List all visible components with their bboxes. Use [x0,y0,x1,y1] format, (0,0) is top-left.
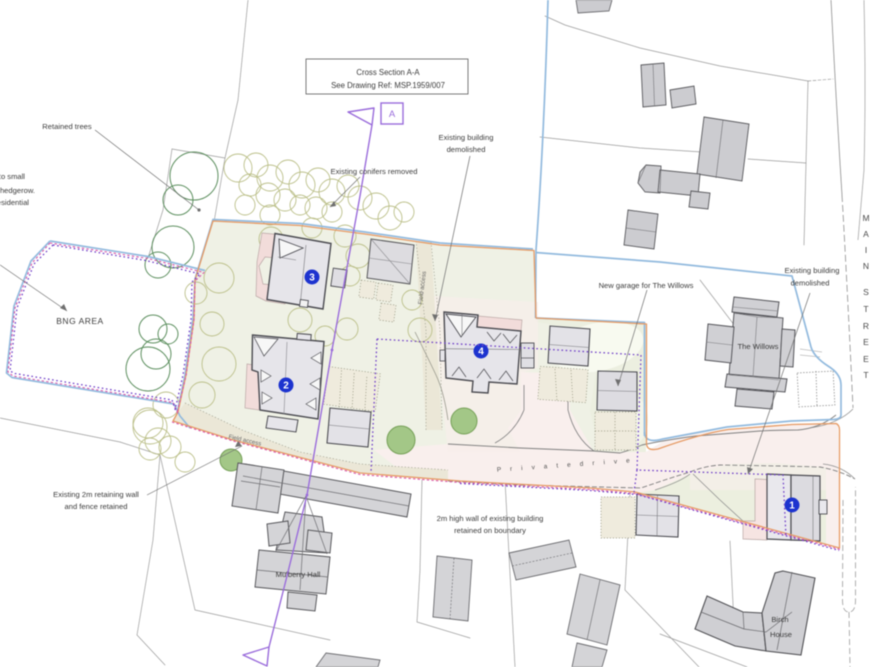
svg-text:2m high wall of existing buil: 2m high wall of existing building [437,514,544,523]
svg-text:Existing building: Existing building [439,133,494,142]
svg-text:2: 2 [283,381,289,392]
svg-text:3: 3 [309,273,315,284]
svg-text:BNG AREA: BNG AREA [56,316,103,326]
svg-text:1: 1 [789,501,795,512]
svg-text:esidential: esidential [0,198,29,207]
svg-text:Retained trees: Retained trees [42,122,92,131]
svg-text:Existing building: Existing building [785,266,840,275]
svg-text:and fence retained: and fence retained [65,502,128,511]
svg-text:New garage for The Willows: New garage for The Willows [599,281,694,290]
svg-text:to small: to small [0,172,25,181]
svg-text:N: N [863,261,869,271]
svg-text:Existing conifers removed: Existing conifers removed [331,167,418,176]
svg-text:I: I [865,245,867,255]
svg-text:Birch: Birch [771,615,788,624]
svg-text:retained on boundary: retained on boundary [454,526,526,535]
svg-text:See Drawing Ref: MSP.1959/007: See Drawing Ref: MSP.1959/007 [331,81,445,90]
svg-text:demolished: demolished [447,145,486,154]
svg-text:S: S [863,287,869,297]
svg-text:T: T [863,370,868,380]
svg-text:Cross Section A-A: Cross Section A-A [356,68,420,77]
svg-text:demolished: demolished [791,279,830,288]
svg-text:House: House [770,630,792,639]
svg-text:R: R [863,321,869,331]
svg-text:A: A [389,109,396,120]
svg-text:4: 4 [478,347,484,358]
svg-text:A: A [863,229,869,239]
svg-text:E: E [863,354,869,364]
svg-text:M: M [862,213,869,223]
svg-text:Mulberry Hall: Mulberry Hall [276,570,321,579]
svg-text:The Willows: The Willows [738,342,779,351]
svg-text:Existing 2m retaining wall: Existing 2m retaining wall [53,490,139,499]
svg-text:E: E [863,337,869,347]
svg-text:hedgerow.: hedgerow. [0,186,35,195]
svg-text:T: T [863,304,868,314]
